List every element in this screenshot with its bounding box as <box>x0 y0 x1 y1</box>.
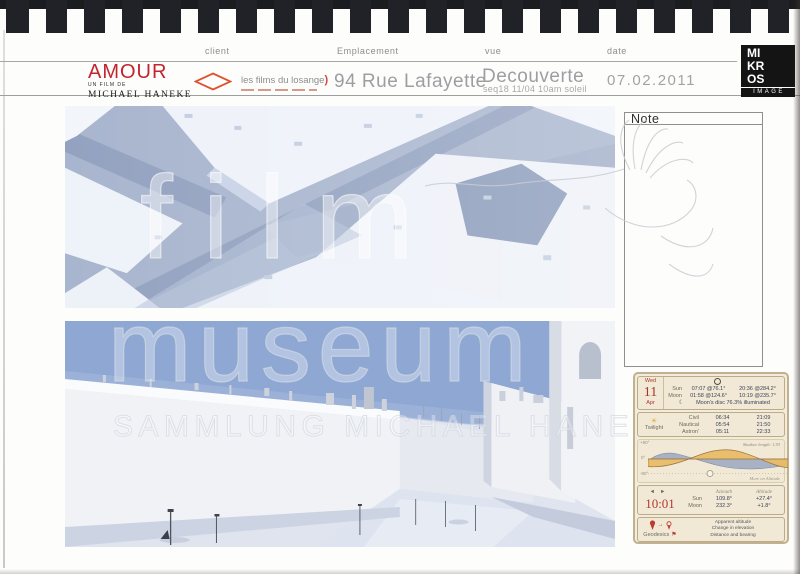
moon-label: Moon <box>664 393 684 400</box>
azimuth-header: Azimuth <box>704 489 744 496</box>
street-view-render <box>65 321 615 547</box>
film-credit: UN FILM DE <box>88 83 192 88</box>
current-time-section: ◄► 10:01 Azimuth Altitude Sun 109.8° +27… <box>637 485 785 515</box>
amour-logo-block: AMOUR UN FILM DE MICHAEL HANEKE <box>88 64 192 100</box>
twilight-section: ☀ Twilight Civil 06:34 21:09 Nautical 05… <box>637 412 785 437</box>
label-client: client <box>205 46 230 56</box>
twilight-row-nautical: Nautical 05:54 21:50 <box>670 422 784 429</box>
film-title: AMOUR <box>88 64 192 81</box>
moon-icon: ☾ <box>664 400 684 407</box>
label-vue: vue <box>485 46 501 56</box>
next-time-icon: ► <box>660 489 670 495</box>
losange-tagline-line <box>241 89 317 91</box>
walker-icon: ⚑ <box>671 532 676 538</box>
label-date: date <box>607 46 627 56</box>
losange-diamond-icon <box>194 72 232 91</box>
geodesics-section: → Geodesics⚑ Apparent altitude Change in… <box>637 517 785 542</box>
sun-ephemeris-card: Wed 11 Apr Sun 07:07 @76.1° 20:36 @284.2… <box>633 372 789 544</box>
pin-b-icon <box>666 521 672 530</box>
sunset-value: 20:36 @284.2° <box>733 386 782 393</box>
page-left-edge <box>3 30 5 568</box>
time-slider-handle <box>707 471 713 477</box>
prev-time-icon: ◄ <box>650 489 660 495</box>
axis-mid-label: 0° <box>641 456 645 461</box>
position-row-sun: Sun 109.8° +27.4° <box>682 496 784 503</box>
geodesics-text: Geodesics <box>643 532 669 538</box>
mikros-row-2: KR <box>747 60 789 72</box>
geodesics-label: Geodesics⚑ <box>643 532 676 539</box>
pos-moon-altitude: +1.8° <box>744 503 784 510</box>
arrow-icon: → <box>658 522 664 528</box>
sun-row: Sun 07:07 @76.1° 20:36 @284.2° <box>664 386 782 393</box>
location-value: 94 Rue Lafayette <box>334 71 487 93</box>
twilight-name: Astron' <box>670 429 702 436</box>
label-emplacement: Emplacement <box>337 46 399 56</box>
moon-row: Moon 01:58 @124.6° 10:19 @235.7° <box>664 393 782 400</box>
losange-logo-block: les films du losange) <box>194 71 328 91</box>
current-time: 10:01 <box>645 497 675 510</box>
twilight-am: 05:11 <box>702 429 743 436</box>
mikros-row-3: OS <box>747 73 789 85</box>
moon-disc-row: ☾ Moon's disc 76.3% illuminated <box>664 400 782 407</box>
twilight-pm: 21:50 <box>743 422 784 429</box>
time-arrows: ◄► <box>650 490 671 496</box>
twilight-row-civil: Civil 06:34 21:09 <box>670 415 784 422</box>
note-box: Note <box>624 112 763 367</box>
position-header-row: Azimuth Altitude <box>682 489 784 496</box>
mikros-logo-box: MI KR OS <box>741 45 795 87</box>
twilight-name: Civil <box>670 415 702 422</box>
mikros-row-1: MI <box>747 47 789 59</box>
twilight-pm: 22:33 <box>743 429 784 436</box>
twilight-pm: 21:09 <box>743 415 784 422</box>
pin-a-icon <box>649 520 656 530</box>
position-row-moon: Moon 232.3° +1.8° <box>682 503 784 510</box>
geodesics-pins: → <box>649 520 672 530</box>
pos-sun-azimuth: 109.8° <box>704 496 744 503</box>
altitude-curves <box>648 444 788 478</box>
comb-binding-teeth <box>0 0 800 33</box>
twilight-label: Twilight <box>645 426 663 432</box>
moonset-value: 10:19 @235.7° <box>733 393 782 400</box>
view-detail: seq18 11/04 10am soleil <box>483 84 587 94</box>
riseset-table: Sun 07:07 @76.1° 20:36 @284.2° Moon 01:5… <box>664 377 784 409</box>
sun-label: Sun <box>664 386 684 393</box>
twilight-am: 05:54 <box>702 422 743 429</box>
altitude-chart: +90° 0° -90° Shadow length: 1.93 More on… <box>637 439 785 483</box>
month: Apr <box>638 401 663 407</box>
pos-sun-altitude: +27.4° <box>744 496 784 503</box>
pos-moon-azimuth: 232.3° <box>704 503 744 510</box>
twilight-table: Civil 06:34 21:09 Nautical 05:54 21:50 A… <box>670 413 784 436</box>
scanned-production-page: client Emplacement vue date AMOUR UN FIL… <box>0 0 800 574</box>
altitude-header: Altitude <box>744 489 784 496</box>
scan-right-edge <box>793 0 800 574</box>
date-cell: Wed 11 Apr <box>638 377 664 409</box>
geodesics-lines: Apparent altitude Change in elevation Di… <box>682 518 784 541</box>
twilight-sun-icon: ☀ <box>651 418 657 425</box>
mikros-image-logo: MI KR OS IMAGE <box>741 45 795 97</box>
twilight-row-astron: Astron' 05:11 22:33 <box>670 429 784 436</box>
moonrise-value: 01:58 @124.6° <box>684 393 733 400</box>
aerial-view-render <box>65 106 615 308</box>
scan-bottom-edge <box>0 569 800 574</box>
losange-text-block: les films du losange) <box>241 71 328 91</box>
pos-sun-label: Sun <box>682 496 704 503</box>
company-name: les films du losange <box>241 75 324 86</box>
riseset-section: Wed 11 Apr Sun 07:07 @76.1° 20:36 @284.2… <box>637 376 785 410</box>
spacer <box>682 489 704 496</box>
sunrise-value: 07:07 @76.1° <box>684 386 733 393</box>
sun-icon <box>714 378 721 385</box>
twilight-name: Nautical <box>670 422 702 429</box>
film-director: MICHAEL HANEKE <box>88 90 192 100</box>
geodesics-cell: → Geodesics⚑ <box>638 518 682 541</box>
mikros-logo-sub: IMAGE <box>741 88 795 97</box>
position-table: Azimuth Altitude Sun 109.8° +27.4° Moon … <box>682 486 784 514</box>
time-cell: ◄► 10:01 <box>638 486 682 514</box>
pos-moon-label: Moon <box>682 503 704 510</box>
twilight-am: 06:34 <box>702 415 743 422</box>
day-number: 11 <box>638 386 663 400</box>
twilight-header: ☀ Twilight <box>638 413 670 436</box>
note-title: Note <box>625 113 762 125</box>
geodesics-line-3: Distance and bearing <box>682 533 784 540</box>
date-value: 07.02.2011 <box>607 72 696 89</box>
moon-disc-text: Moon's disc 76.3% illuminated <box>684 400 782 407</box>
company-bracket: ) <box>324 74 328 86</box>
weekday: Wed <box>638 379 663 385</box>
